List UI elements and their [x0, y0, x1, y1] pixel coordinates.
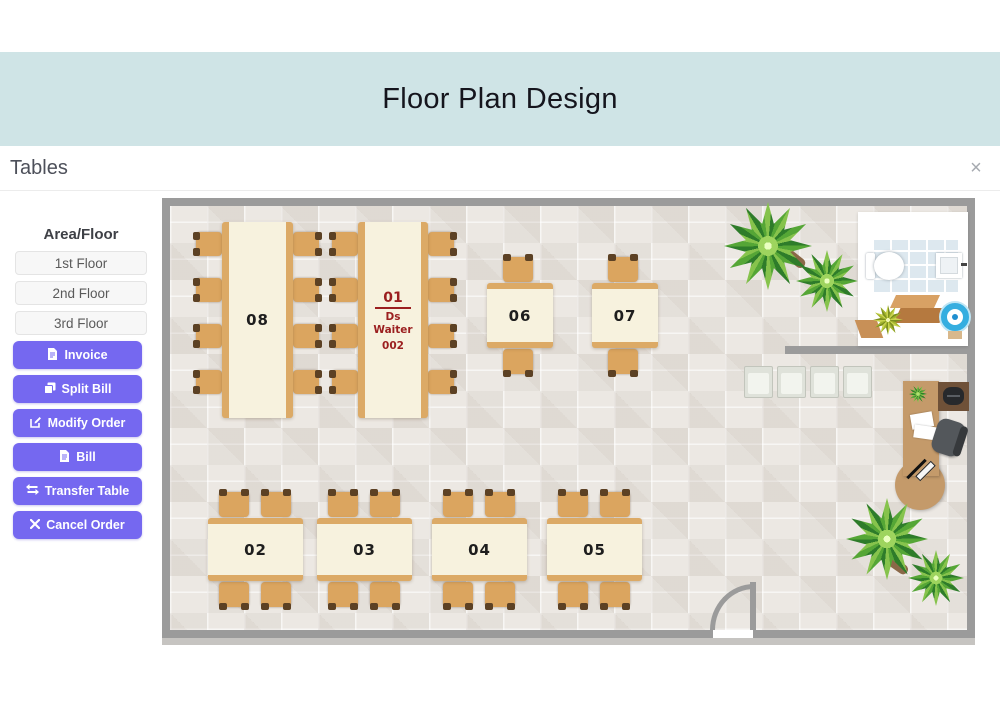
- chair: [485, 582, 515, 607]
- bench: [855, 320, 884, 338]
- chair: [293, 370, 319, 394]
- chair: [332, 232, 358, 256]
- page-title: Floor Plan Design: [382, 83, 618, 116]
- laptop-icon: [943, 387, 964, 405]
- chair: [485, 492, 515, 517]
- table-label: 05: [583, 541, 606, 559]
- chair: [443, 492, 473, 517]
- waiting-chair: [810, 366, 839, 398]
- file-invoice-icon: [47, 348, 58, 363]
- washbasin-stand: [948, 331, 962, 339]
- page-banner: Floor Plan Design: [0, 52, 1000, 146]
- table-05[interactable]: 05: [547, 518, 642, 581]
- x-icon: [30, 518, 40, 532]
- chair: [428, 278, 454, 302]
- chair: [332, 324, 358, 348]
- wall-shadow: [162, 638, 975, 645]
- wall-bottom-left-segment: [162, 630, 713, 638]
- split-bill-button[interactable]: Split Bill: [13, 375, 142, 403]
- transfer-arrows-icon: [26, 484, 39, 498]
- bathroom: [858, 212, 968, 346]
- wall-right: [967, 198, 975, 638]
- waiting-chair: [744, 366, 773, 398]
- chair: [558, 582, 588, 607]
- wall-top: [162, 198, 975, 206]
- transfer-table-button[interactable]: Transfer Table: [13, 477, 142, 505]
- bench: [890, 295, 940, 308]
- chair: [261, 582, 291, 607]
- door-leaf: [750, 582, 756, 630]
- modify-order-button[interactable]: Modify Order: [13, 409, 142, 437]
- chair: [608, 257, 638, 282]
- chair: [196, 324, 222, 348]
- chair: [332, 370, 358, 394]
- chair: [608, 349, 638, 374]
- chair: [219, 492, 249, 517]
- chair: [293, 232, 319, 256]
- wall-left: [162, 198, 170, 638]
- bill-button[interactable]: Bill: [13, 443, 142, 471]
- faucet-icon: [961, 263, 967, 266]
- table-label: 08: [246, 311, 269, 329]
- chair: [558, 492, 588, 517]
- chair: [443, 582, 473, 607]
- chair: [261, 492, 291, 517]
- floor-button-1st[interactable]: 1st Floor: [15, 251, 147, 275]
- chair: [503, 257, 533, 282]
- area-floor-heading: Area/Floor: [0, 226, 162, 243]
- chair: [196, 278, 222, 302]
- table-label: 01: [375, 290, 410, 309]
- toilet-icon: [874, 252, 904, 280]
- table-label: 03: [353, 541, 376, 559]
- table-08[interactable]: 08: [222, 222, 293, 418]
- sink-icon: [936, 253, 962, 278]
- chair: [428, 324, 454, 348]
- wall-interior: [785, 346, 967, 354]
- floor-button-3rd[interactable]: 3rd Floor: [15, 311, 147, 335]
- waiting-chair: [777, 366, 806, 398]
- panel-title: Tables: [10, 157, 68, 180]
- chair: [196, 232, 222, 256]
- file-icon: [59, 450, 70, 465]
- washbasin-icon: [941, 303, 969, 331]
- chair: [293, 324, 319, 348]
- floor-plan-canvas: 08 01 Ds Waiter 002 06 07: [162, 198, 975, 656]
- close-icon[interactable]: ×: [964, 156, 988, 180]
- chair: [600, 492, 630, 517]
- chair: [370, 582, 400, 607]
- chair: [370, 492, 400, 517]
- waiter-name: Ds Waiter: [365, 311, 421, 338]
- tables-panel-header: Tables ×: [0, 146, 1000, 191]
- chair: [219, 582, 249, 607]
- waiting-chair: [843, 366, 872, 398]
- chair: [328, 492, 358, 517]
- chair: [600, 582, 630, 607]
- table-03[interactable]: 03: [317, 518, 412, 581]
- chair: [332, 278, 358, 302]
- cancel-order-button[interactable]: Cancel Order: [13, 511, 142, 539]
- edit-icon: [30, 416, 42, 431]
- floor-plan-page: Floor Plan Design Tables × Area/Floor 1s…: [0, 0, 1000, 709]
- chair: [428, 232, 454, 256]
- chair: [196, 370, 222, 394]
- chair: [293, 278, 319, 302]
- table-label: 04: [468, 541, 491, 559]
- table-06[interactable]: 06: [487, 283, 553, 348]
- waiter-code: 002: [365, 340, 421, 354]
- table-01[interactable]: 01 Ds Waiter 002: [358, 222, 428, 418]
- chair: [428, 370, 454, 394]
- floor-button-2nd[interactable]: 2nd Floor: [15, 281, 147, 305]
- bench: [894, 308, 947, 323]
- table-02[interactable]: 02: [208, 518, 303, 581]
- invoice-button[interactable]: Invoice: [13, 341, 142, 369]
- table-07[interactable]: 07: [592, 283, 658, 348]
- wall-bottom-right-segment: [753, 630, 975, 638]
- table-label: 06: [509, 307, 532, 325]
- table-label: 02: [244, 541, 267, 559]
- table-01-status: 01 Ds Waiter 002: [365, 287, 421, 354]
- copy-icon: [44, 382, 56, 397]
- chair: [503, 349, 533, 374]
- table-04[interactable]: 04: [432, 518, 527, 581]
- sidebar: Area/Floor 1st Floor 2nd Floor 3rd Floor…: [0, 190, 162, 539]
- table-label: 07: [614, 307, 637, 325]
- chair: [328, 582, 358, 607]
